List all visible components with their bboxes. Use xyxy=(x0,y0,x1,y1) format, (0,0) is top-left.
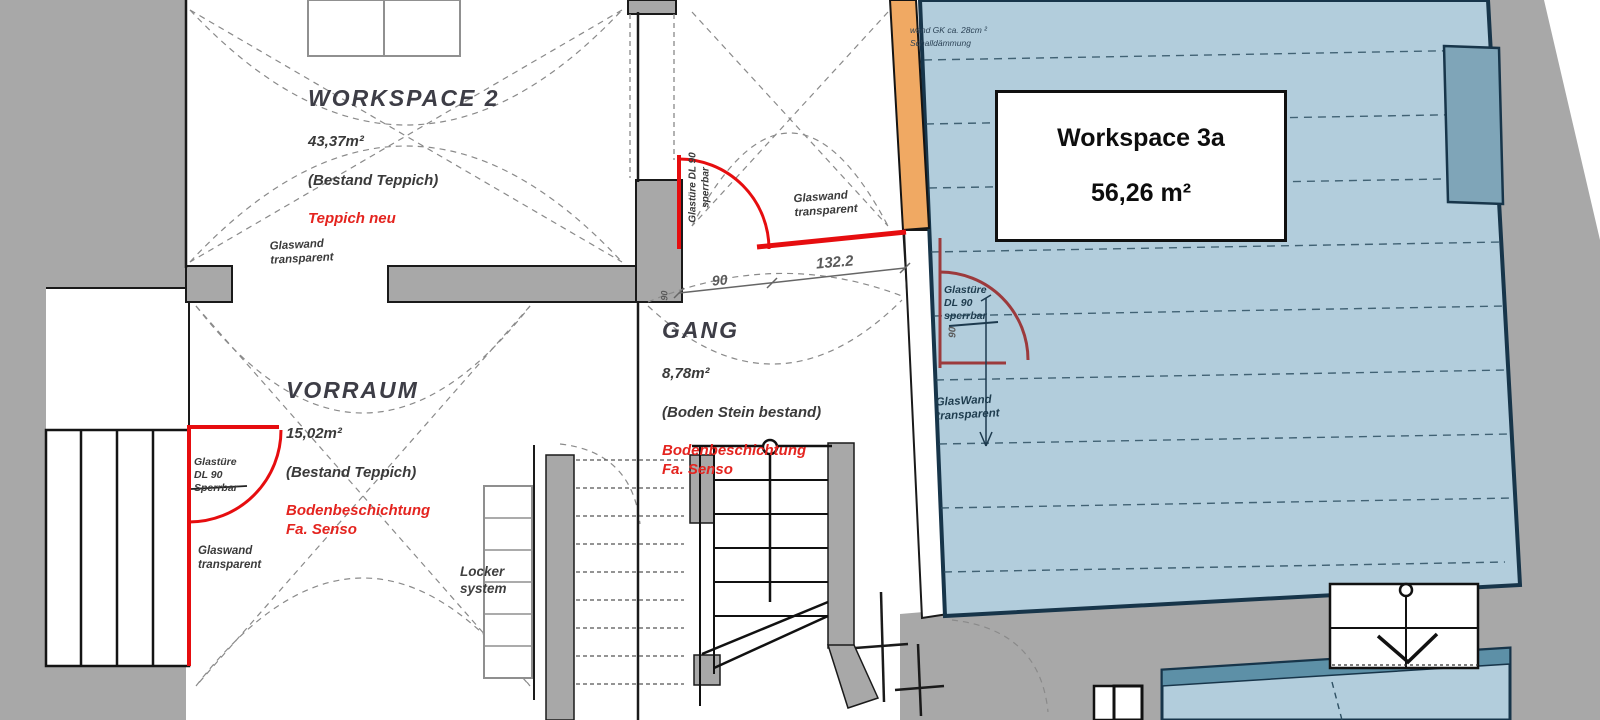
room-name-workspace3a: Workspace 3a xyxy=(1057,124,1225,153)
dim-text-132-2: 132.2 xyxy=(815,252,854,274)
glaswand-label-gang: Glaswand transparent xyxy=(793,188,858,221)
glaswand-label-workspace3a: GlasWand transparent xyxy=(935,392,1000,424)
skylight-boxes xyxy=(308,0,460,56)
room-floor-existing-gang: (Boden Stein bestand) xyxy=(662,404,821,423)
room-name-vorraum: VORRAUM xyxy=(286,376,430,405)
floorplan: WORKSPACE 2 43,37m² (Bestand Teppich) Te… xyxy=(0,0,1600,720)
room-label-workspace2: WORKSPACE 2 43,37m² (Bestand Teppich) Te… xyxy=(308,64,500,249)
wall-notch xyxy=(1444,46,1503,204)
dim-text-gang-door-90: 90 xyxy=(659,291,670,301)
locker-system-label: Locker system xyxy=(460,564,507,598)
left-striped-bay xyxy=(46,430,189,666)
room-name-workspace2: WORKSPACE 2 xyxy=(308,84,500,113)
room-label-vorraum: VORRAUM 15,02m² (Bestand Teppich) Bodenb… xyxy=(286,356,430,560)
dim-text-90: 90 xyxy=(711,271,728,290)
glass-partition-dashed xyxy=(630,14,674,178)
dim-text-ws3a-door-90: 90 xyxy=(947,327,960,338)
room-floor-existing-workspace2: (Bestand Teppich) xyxy=(308,172,500,191)
glaswand-label-vorraum: Glaswand transparent xyxy=(198,544,261,573)
room-area-vorraum: 15,02m² xyxy=(286,425,430,444)
room-floor-existing-vorraum: (Bestand Teppich) xyxy=(286,464,430,483)
room-area-workspace3a: 56,26 m² xyxy=(1091,179,1191,208)
room-floor-new-gang: Bodenbeschichtung Fa. Senso xyxy=(662,442,821,480)
glaswand-label-workspace2: Glaswand transparent xyxy=(269,236,334,268)
room-floor-new-workspace2: Teppich neu xyxy=(308,210,500,229)
room-area-workspace2: 43,37m² xyxy=(308,133,500,152)
glastuere-label-vorraum: Glastüre DL 90 Sperrbar xyxy=(194,456,238,495)
glastuere-label-workspace3a: Glastüre DL 90 sperrbar xyxy=(944,284,987,323)
room-area-gang: 8,78m² xyxy=(662,365,821,384)
wall-note-label: wand GK ca. 28cm ² Schalldämmung xyxy=(910,24,987,50)
room-label-gang: GANG 8,78m² (Boden Stein bestand) Bodenb… xyxy=(662,296,821,500)
dimension-line-gang xyxy=(674,263,910,298)
glastuere-label-gang: Glastüre DL 90 sperrbar xyxy=(688,138,713,238)
stairwell-down xyxy=(1330,584,1478,668)
room-label-box-workspace3a: Workspace 3a 56,26 m² xyxy=(995,90,1287,242)
room-floor-new-vorraum: Bodenbeschichtung Fa. Senso xyxy=(286,502,430,540)
room-name-gang: GANG xyxy=(662,316,821,345)
